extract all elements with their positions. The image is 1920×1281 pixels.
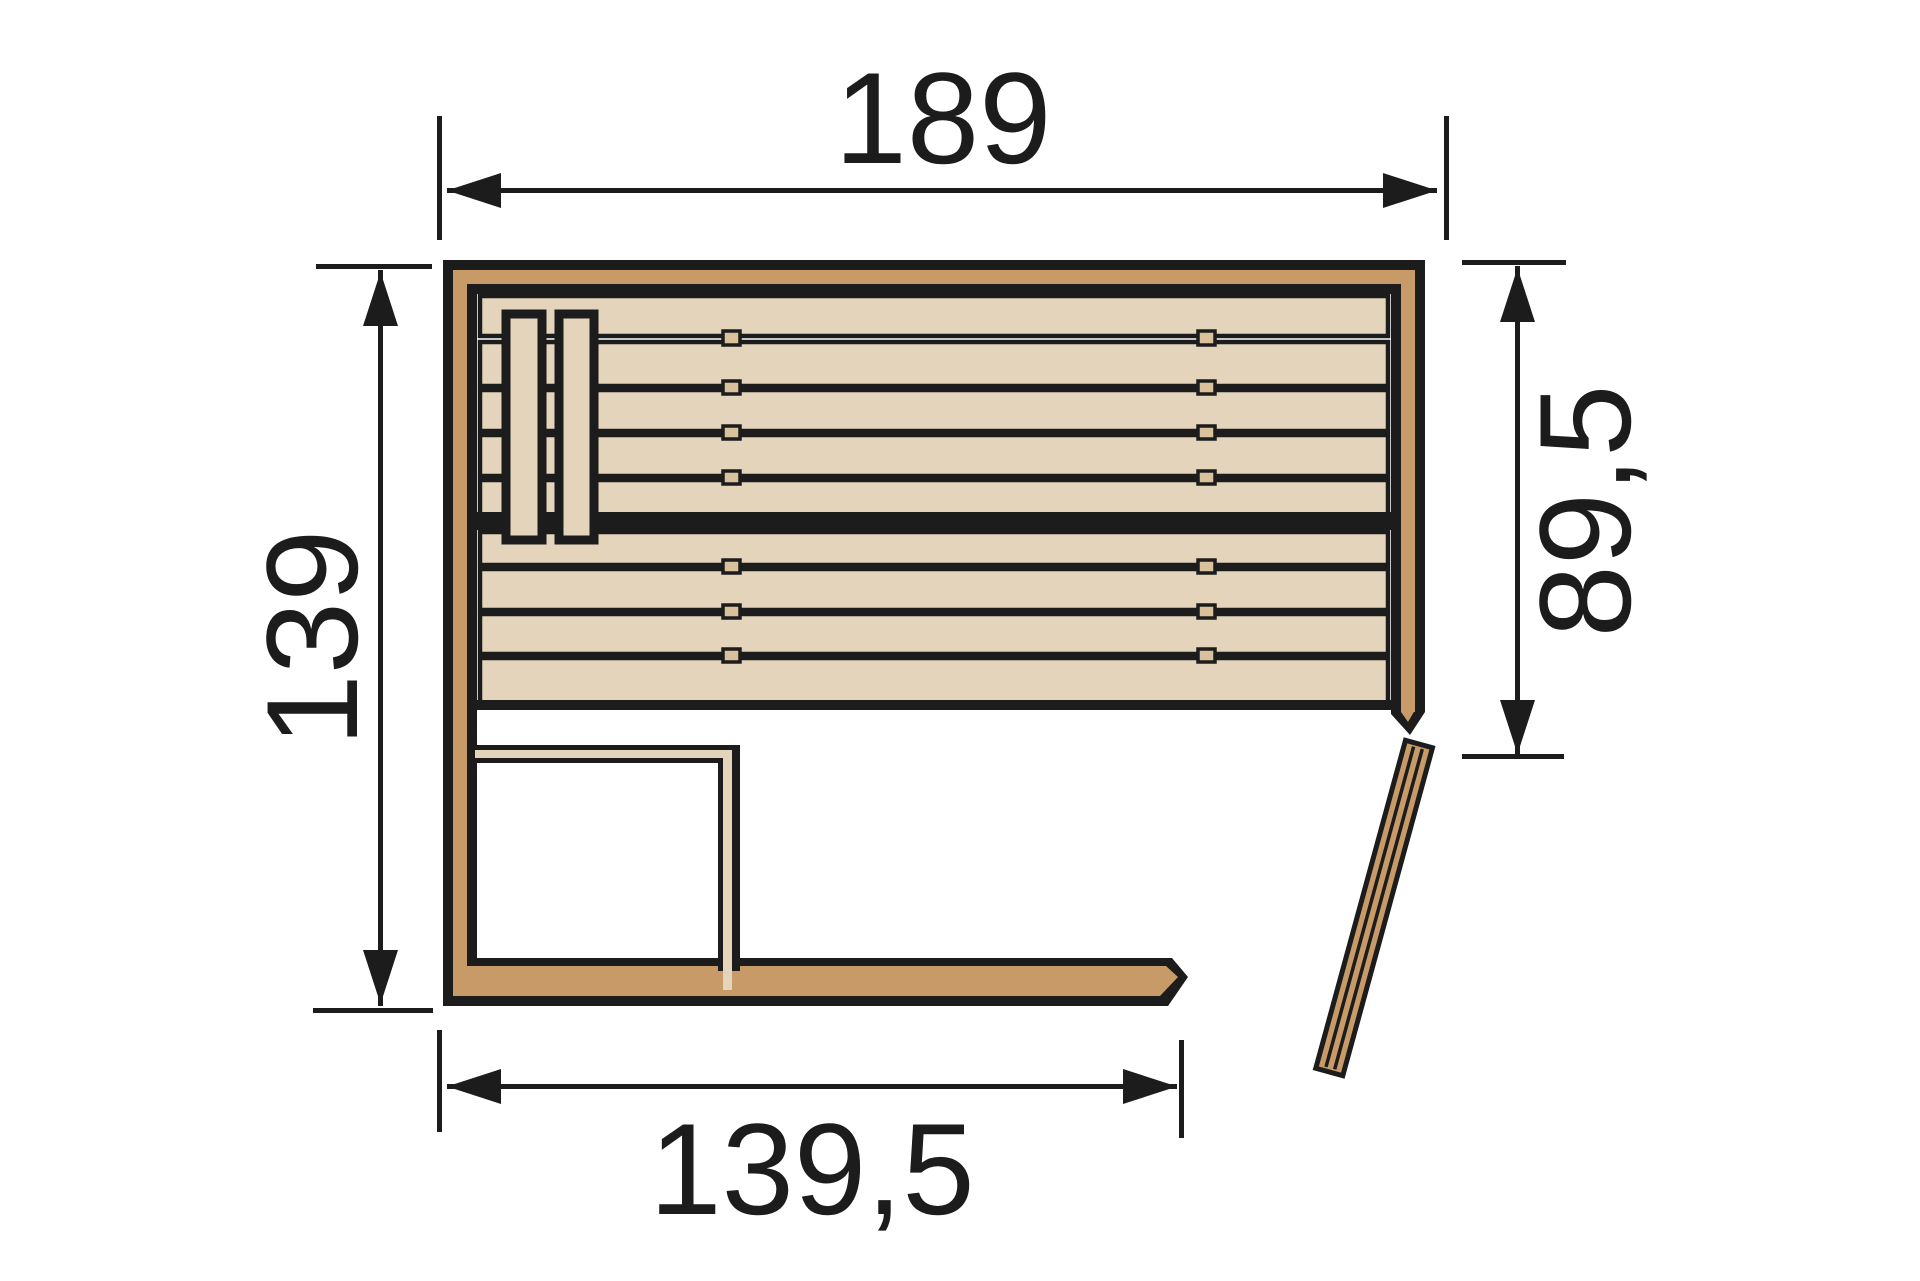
dim-tick	[437, 116, 442, 240]
backrest-board	[506, 314, 542, 540]
dim-tick	[313, 1008, 433, 1013]
dimension-bottom-frontwall: 139,5	[437, 1030, 1184, 1242]
bench-front-edge	[477, 512, 1391, 530]
slat-connector	[723, 649, 740, 662]
dim-tick	[1462, 260, 1566, 265]
bench-slat	[480, 614, 1388, 654]
bench-slat	[480, 480, 1388, 516]
dimension-left-depth: 139	[239, 264, 433, 1013]
frame-right-wood	[723, 750, 732, 990]
slat-connector	[723, 471, 740, 484]
dim-tick	[1179, 1040, 1184, 1138]
dim-arrowhead-left	[447, 173, 501, 208]
dim-label-left: 139	[239, 530, 385, 747]
slat-connector	[723, 560, 740, 573]
dim-arrowhead-down	[1500, 700, 1535, 754]
dim-arrowhead-up	[363, 272, 398, 326]
frame-top-wood	[475, 750, 732, 758]
dim-arrowhead-up	[1500, 268, 1535, 322]
dim-tick	[316, 264, 432, 269]
slat-connector	[723, 331, 740, 345]
slat-connector	[1198, 605, 1215, 618]
slat-connector	[1198, 426, 1215, 439]
slat-connector	[723, 381, 740, 394]
backrest-board	[559, 314, 594, 540]
slat-connector	[723, 426, 740, 439]
slat-connector	[723, 605, 740, 618]
bench-slat	[480, 569, 1388, 610]
bench-slat	[480, 390, 1388, 431]
dim-arrowhead-right	[1383, 173, 1437, 208]
right-wall-wood	[1401, 270, 1415, 712]
bench-slat	[480, 296, 1388, 336]
left-wall-wood	[453, 270, 467, 996]
dim-tick	[437, 1030, 442, 1132]
bench-slat	[480, 658, 1388, 705]
dimension-top-width: 189	[437, 45, 1449, 240]
bench-slat	[480, 342, 1388, 386]
dim-tick	[1444, 116, 1449, 240]
dim-tick	[1462, 754, 1564, 759]
sauna-floor-plan-drawing: 189 139 89,5 139,5	[0, 0, 1920, 1281]
top-wall-wood	[453, 270, 1415, 284]
dim-arrowhead-left	[447, 1069, 501, 1104]
bottom-wall-wood	[453, 966, 1160, 996]
slat-connector	[1198, 331, 1215, 345]
slat-connector	[1198, 649, 1215, 662]
bench-slat	[480, 435, 1388, 476]
dim-label-top: 189	[835, 45, 1052, 191]
dim-line	[447, 1084, 1177, 1089]
slat-connector	[1198, 471, 1215, 484]
bench-bottom-edge	[477, 700, 1391, 710]
bench-slat	[480, 532, 1388, 565]
dim-arrowhead-down	[363, 950, 398, 1004]
dim-label-bottom: 139,5	[649, 1096, 974, 1242]
dim-label-right: 89,5	[1512, 384, 1658, 637]
dim-arrowhead-right	[1123, 1069, 1177, 1104]
slat-connector	[1198, 560, 1215, 573]
bench-slats	[477, 296, 1391, 710]
floor-plan-canvas: 189 139 89,5 139,5	[0, 0, 1920, 1281]
dimension-right-sidewall: 89,5	[1462, 260, 1658, 759]
slat-connector	[1198, 381, 1215, 394]
